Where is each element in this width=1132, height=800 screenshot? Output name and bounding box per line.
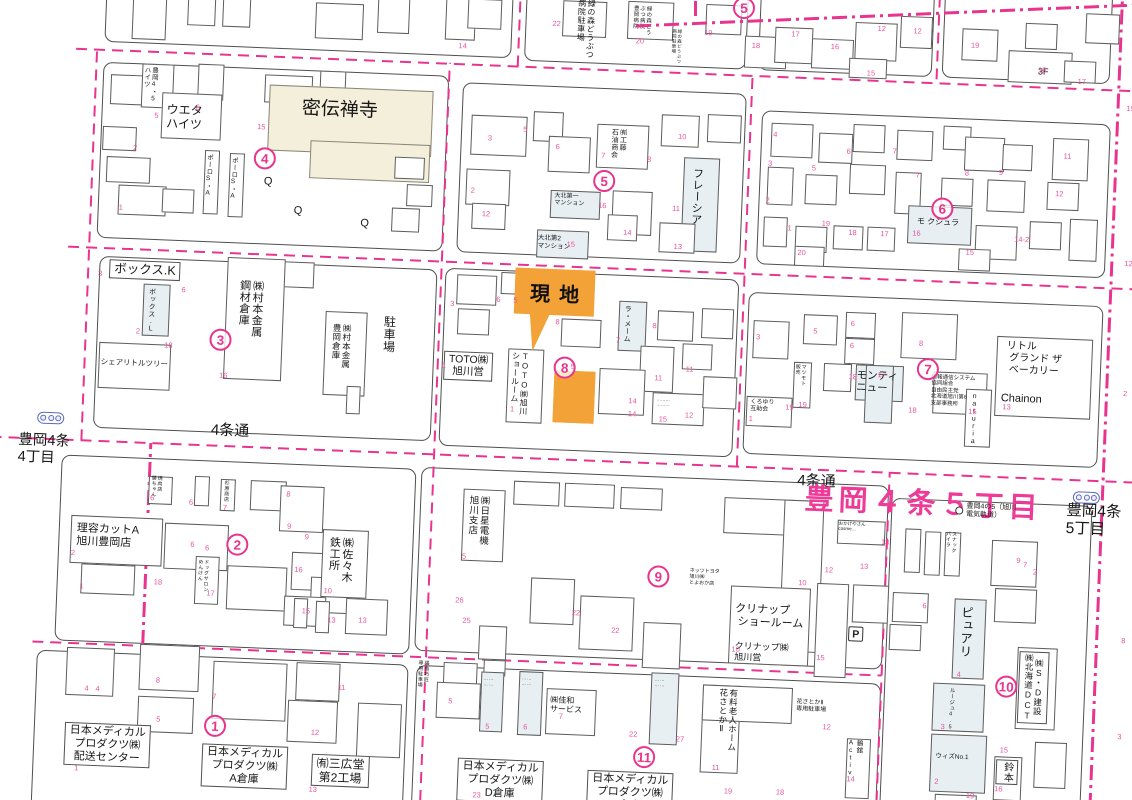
lot-number: 18 [164,342,173,350]
matsumoto-hanbai: マツモト 販売 [793,364,806,386]
lot-number: 5 [813,328,817,336]
lot-number: 15 [659,415,668,423]
site-callout: 現地 [514,268,596,317]
lot-number: 16 [994,785,1003,793]
lot-number: 14-2 [1014,236,1029,244]
lot-number: 11 [712,764,720,772]
lot-number: 5 [462,553,466,561]
lot-number: 14 [623,229,632,237]
lot-number: 7 [1023,561,1027,569]
suzumoto: 鈴本 [995,759,1018,785]
lot-number: 15 [566,241,575,249]
lot-number: 6 [555,143,559,151]
lot-number: 18 [752,42,761,50]
building [106,156,151,184]
building [986,179,1025,212]
lot-number: 16 [831,43,840,51]
building [763,216,788,247]
lot-number: 18 [154,578,163,586]
apt-polo-sa-2: ポーロS・A [228,157,237,200]
lot-number: 16 [294,566,303,574]
lot-number: 17 [880,230,889,238]
building [701,308,734,339]
lot-number: 19 [971,42,980,50]
lot-number: 3 [1117,733,1121,741]
building [770,123,813,159]
building [1068,219,1098,262]
lot-number: 6 [922,602,926,610]
building [470,115,528,157]
building [578,595,634,651]
district-5chome: 豊岡4条 5丁目 [1065,502,1122,541]
lot-number: 1 [787,224,791,232]
lot-number: 7 [601,152,605,160]
lot-number: 12 [685,411,694,419]
building [852,584,889,623]
netz-toyota: ネッツトヨタ 旭川㈱ とよおか店 [689,569,720,588]
muramoto-kinzoku-kozai: ㈱村本金属 鋼材倉庫 [236,279,264,337]
lot-number: 5 [812,164,816,172]
lot-number: 6 [190,541,194,549]
sugihara-shoten: 杉原商店 [222,480,229,502]
building [346,386,361,415]
animal-hospital-parking-2: 緑の森どうぶつ 病院駐車場 [671,29,683,64]
lot-number: 9 [1016,557,1020,565]
apt-toyooka45-heights: 豊岡4・5 ハイツ [141,66,158,103]
building [315,2,364,40]
building [391,208,420,233]
cleanup-asahikawa: クリナップ㈱ 旭川営 [734,641,789,664]
lot-number: 3 [450,300,454,308]
building [849,164,886,195]
map-rotated-layer: 現地密伝禅寺ウエタ ハイツ豊岡4・5 ハイツポーロS・AポーロS・Aボックス.K… [0,0,1132,800]
bus-stop-toyooka-4-5: 豊岡4の5（旭川 電気軌道） [966,503,1016,521]
lot-number: 22 [572,609,581,617]
lot-number: 8 [919,340,923,348]
site-highlight [552,370,595,424]
building [620,487,663,511]
lot-number: 18 [908,406,917,414]
building [377,0,410,34]
lot-number: 5 [523,126,527,134]
building [707,114,742,143]
lot-number: 6 [205,544,209,552]
building [295,662,340,702]
lot-number: 8 [652,322,656,330]
building [286,700,338,744]
lot-number: 19 [704,29,713,37]
little-grand-bakery: リトル グランド ザ ベーカリー [1006,340,1063,378]
building [406,184,433,207]
lot-number: 19 [822,220,831,228]
yuryo-rojin-home: 有料老人ホーム 花さとかⅡ [716,688,739,752]
box-k: ボックス.K [109,259,181,281]
lot-number: 6 [523,723,527,731]
lot-number: 20 [636,37,645,45]
lot-number: 1 [749,415,753,423]
lot-number: 14 [628,410,637,418]
lot-number: 17 [791,30,800,38]
illegible-micro-label-3: …… …… [521,675,532,686]
lot-number: 18 [1038,66,1047,74]
building [642,622,682,669]
building [65,647,115,697]
lot-number: 6 [496,296,500,304]
lot-number: 12 [913,27,922,35]
lot-number: 4 [957,671,961,679]
building [702,684,793,724]
lot-number: 19 [785,403,794,411]
building [990,540,1038,588]
lot-number: 16 [598,202,607,210]
building [889,624,922,651]
okita-1-mansion: 大北第一 マンション [554,193,585,208]
temple-mitsudenzenji: 密伝禅寺 [301,98,378,123]
lot-number: 5 [448,697,452,705]
nihon-medical-soko-2: 日本メディカル プロダクツ㈱ 倉庫 [586,770,674,800]
lot-number: 16 [912,229,921,237]
lot-number: 13 [860,563,869,571]
sd-kensetsu-dct: ㈱S・D建設 ㈱北海道DCT [1017,651,1050,724]
building [162,188,195,213]
lot-number: 6 [150,494,154,502]
lot-number: 4 [95,685,99,693]
illegible-micro-label-1: ……… ……… [656,396,670,407]
lot-number: 9 [287,523,291,531]
lot-number: 6 [851,320,855,328]
building [80,563,135,595]
parking-lot-label: 駐車場 [381,315,397,353]
lot-number: 8 [286,491,290,499]
lot-number: 12 [822,723,831,731]
building [598,368,646,416]
lot-number: 9 [305,533,309,541]
lot-number: 15 [1126,105,1132,113]
building [282,261,315,288]
lot-number: 13 [358,617,367,625]
lot-number: 7 [223,504,227,512]
lot-number: 22 [629,730,638,738]
lot-number: 17 [206,589,215,597]
building [467,0,502,30]
apt-freesia: フレーシア [689,167,704,225]
building [804,174,837,205]
lot-number: 2 [934,778,938,786]
lot-number: 22 [611,627,620,635]
building [958,248,991,271]
lot-number: 7 [616,337,620,345]
lot-number: 19 [724,787,733,795]
lot-number: 20 [797,249,806,257]
lot-number: 6 [850,342,854,350]
building [961,28,998,61]
building [924,531,942,576]
lot-number: 13 [673,243,682,251]
temple-gate-symbol-2: Q [293,205,302,218]
sasaki-tekkosho: ㈱佐々木 鉄工所 [326,536,354,583]
lot-number: 19 [798,401,807,409]
lot-number: 8 [647,156,651,164]
building [117,185,166,217]
lot-number: 1 [79,582,83,590]
building [896,130,933,161]
lot-number: 15 [965,249,974,257]
building [1029,221,1062,250]
kawa-service: ㈱佳和 サービス [550,695,583,715]
lot-number: 2 [471,187,475,195]
lot-number: 1 [119,204,123,212]
nihon-medical-a-soko: 日本メディカル プロダクツ㈱ A倉庫 [201,743,289,789]
nihon-medical-d-soko: 日本メディカル プロダクツ㈱ D倉庫 [456,758,544,800]
lot-number: 11 [338,684,346,692]
lot-number: 15 [816,654,825,662]
nihon-medical-haiso: 日本メディカル プロダクツ㈱ 配送センター [63,722,151,768]
building [853,124,886,153]
lot-number: 26 [455,596,464,604]
lot-number: 14 [458,42,467,50]
building [138,644,200,692]
lot-number: 2 [1033,569,1037,577]
lot-number: 13 [327,616,336,624]
lot-number: 11 [1063,152,1071,160]
nissei-denki: ㈱日星電機 旭川支店 [465,495,489,546]
lot-number: 17 [877,371,886,379]
building [803,314,838,345]
la-meme: ラ・メーム [622,305,632,343]
building [813,583,849,678]
building [548,136,591,174]
lot-number: 5 [156,715,160,723]
lot-number: 10 [678,133,687,141]
building [766,167,794,206]
building [702,376,737,409]
temple-gate-symbol-1: Q [264,175,273,188]
muramoto-kinzoku-toyooka: ㈱村本金属 豊岡倉庫 [330,323,352,369]
lot-number: 3 [768,160,772,168]
lot-number: 7 [559,713,563,721]
building [436,682,481,720]
lot-number: 11 [672,205,680,213]
kudo-sekiyu: ㈲工藤 石油商会 [609,128,627,159]
lot-number: 2 [133,144,137,152]
lot-number: 4 [84,685,88,693]
building [994,588,1037,624]
lot-number: 15 [257,123,266,131]
building [1033,742,1067,789]
site-callout-label: 現地 [521,276,589,308]
cleanup-showroom: クリナップ ショールーム [734,603,804,632]
road-centerline [936,0,942,79]
lot-number: 2 [1123,390,1127,398]
lot-number: 6 [196,104,200,112]
district-4chome: 豊岡4条 4丁目 [17,432,70,468]
building [194,476,210,507]
building [457,308,490,335]
snack-baira: スナック バイラ [944,531,957,553]
toto-asahikawa: TOTO㈱ 旭川営 [443,351,493,382]
okageya-san: おかげやさん cosme… [838,521,865,533]
lot-number: 12 [1055,190,1064,198]
lot-number: 3 [98,270,102,278]
building [1085,13,1120,44]
building [657,310,694,341]
building [931,683,985,733]
lot-number: 5 [513,296,517,304]
lot-number: 6 [181,286,185,294]
lot-number: 19 [966,792,975,800]
puari: ピュアリ [956,606,973,659]
building [222,0,252,28]
lot-number: 7 [212,693,216,701]
lot-number: 27 [676,735,685,743]
road-centerline [517,0,524,67]
illegible-micro-label-2: …… …… [483,676,494,687]
lot-number: 6 [846,148,850,156]
lot-number: 9 [999,169,1003,177]
lot-number: 18 [848,229,857,237]
temple-gate-symbol-3: Q [360,217,369,230]
building [854,22,897,62]
lot-number: 10 [731,646,740,654]
parking-symbol: P [848,626,864,642]
lot-number: 12 [877,25,886,33]
lot-number: 6 [189,499,193,507]
lot-number: 3 [488,134,492,142]
building [187,0,216,26]
site-callout-pointer [528,313,550,352]
lot-number: 1 [510,405,514,413]
lot-number: 3 [756,333,760,341]
lot-number: 14 [846,775,855,783]
lot-number: 16 [219,372,228,380]
lot-number: 15 [302,607,311,615]
lot-number: 1 [74,764,78,772]
lot-number: 12 [1124,260,1132,268]
lot-number: 7 [916,172,920,180]
lot-number: 5 [154,112,158,120]
building [513,481,560,507]
apt-polo-sa-1: ポーロS・A [203,154,212,197]
lot-number: 23 [472,791,481,799]
lot-number: 22 [552,20,561,28]
building [478,625,507,660]
lot-number: 2 [136,327,140,335]
lot-number: 1 [442,362,446,370]
lot-number: 13 [881,538,890,546]
lot-number: 8 [156,676,160,684]
tsurukan-activ: 鶴舘 Activ [845,739,862,777]
building [661,114,700,147]
hanasatoka-parking: 花さとかⅡ 専用駐車場 [796,699,827,714]
lot-number: 10 [323,587,332,595]
with-no1: ウィズNo.1 [935,753,969,762]
lot-number: 13 [1002,403,1011,411]
building [356,703,402,759]
lot-number: 18 [776,788,785,796]
lot-number: 8 [1121,637,1125,645]
building [394,157,425,180]
lot-number: 3 [940,723,944,731]
lot-number: 15 [867,69,876,77]
riyo-cut-a: 理容カットA 旭川豊岡店 [76,522,139,550]
zenrin-style-residential-map: 現地密伝禅寺ウエタ ハイツ豊岡4・5 ハイツポーロS・AポーロS・Aボックス.K… [0,0,1132,800]
lot-number: 11 [654,374,662,382]
lot-number: 2 [71,549,75,557]
building [1025,23,1058,50]
lot-number: 12 [311,729,320,737]
lot-number: 17 [1077,78,1086,86]
building [904,528,922,573]
lot-number: 10 [798,579,807,587]
lot-number: 12 [825,566,834,574]
lot-number: 5 [571,363,575,371]
lot-number: 8 [555,318,559,326]
lot-number: 25 [462,617,471,625]
sankodo-factory: ㈲三広堂 第2工場 [311,754,370,789]
animal-hospital: 緑の森どう ぶつ病院 豊岡病院 [631,5,652,36]
lot-number: 15 [968,408,977,416]
building [529,577,575,625]
lot-number: 13 [308,786,317,794]
illegible-micro-label-4: …… …… [654,676,665,687]
building [1002,144,1033,171]
building [226,565,288,611]
traffic-signal-icon [1073,491,1100,504]
lot-number: 8 [965,170,969,178]
building [132,0,168,40]
traffic-signal-icon [37,411,64,424]
building [211,661,287,722]
building [102,126,137,151]
animal-hospital-parking: 緑の森どうぶつ 病院駐車場 [575,0,596,59]
building [564,483,615,509]
building [844,338,875,365]
fukushima-parking: 福島巧匠 専用駐車場 [416,660,429,688]
street-yojo-dori-west: 4条通 [211,421,250,440]
lot-number: 2 [765,197,769,205]
lot-number: 12 [482,210,491,218]
lot-number: 5 [485,723,489,731]
building [456,274,497,306]
building [900,312,958,360]
lot-number: 11 [686,365,694,373]
lot-number: 15 [1000,746,1009,754]
lot-number: 7 [892,148,896,156]
kuroyuri: くろゆり 互助会 [750,399,775,414]
lot-number: 14 [628,397,637,405]
building [964,136,1005,172]
lot-number: 4 [773,131,777,139]
lot-number: 18 [848,373,857,381]
building [561,318,602,348]
